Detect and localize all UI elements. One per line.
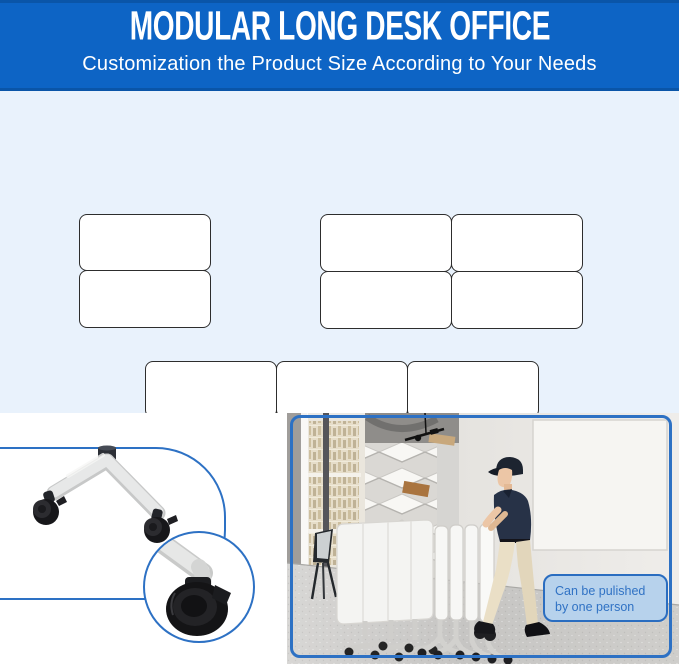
desk-top: [145, 361, 277, 418]
desk-configuration-section: [0, 91, 679, 413]
page-subtitle: Customization the Product Size According…: [82, 52, 596, 76]
desk-top: [320, 214, 452, 272]
photo-panel: Can be pulished by one person: [287, 413, 679, 664]
ceiling: [365, 413, 459, 446]
desk-top: [451, 271, 583, 329]
office-photo: [287, 413, 679, 664]
desk-top: [407, 361, 539, 418]
page-title: MODULAR LONG DESK OFFICE: [129, 4, 549, 50]
caster-detail-panel: [0, 413, 287, 664]
desk-top: [79, 270, 211, 328]
desk-configuration-2: [79, 214, 210, 327]
desk-top: [451, 214, 583, 272]
desk-top: [320, 271, 452, 329]
banner: MODULAR LONG DESK OFFICE Customization t…: [0, 0, 679, 91]
wall-whiteboard: [533, 420, 667, 550]
caster-close-up-illustration: [145, 533, 253, 641]
product-infographic: MODULAR LONG DESK OFFICE Customization t…: [0, 0, 679, 664]
desk-configuration-4: [320, 214, 582, 328]
caster-zoom-circle: [143, 531, 255, 643]
desk-top: [276, 361, 408, 418]
photo-caption: Can be pulished by one person: [543, 574, 668, 622]
desk-top: [79, 214, 211, 272]
